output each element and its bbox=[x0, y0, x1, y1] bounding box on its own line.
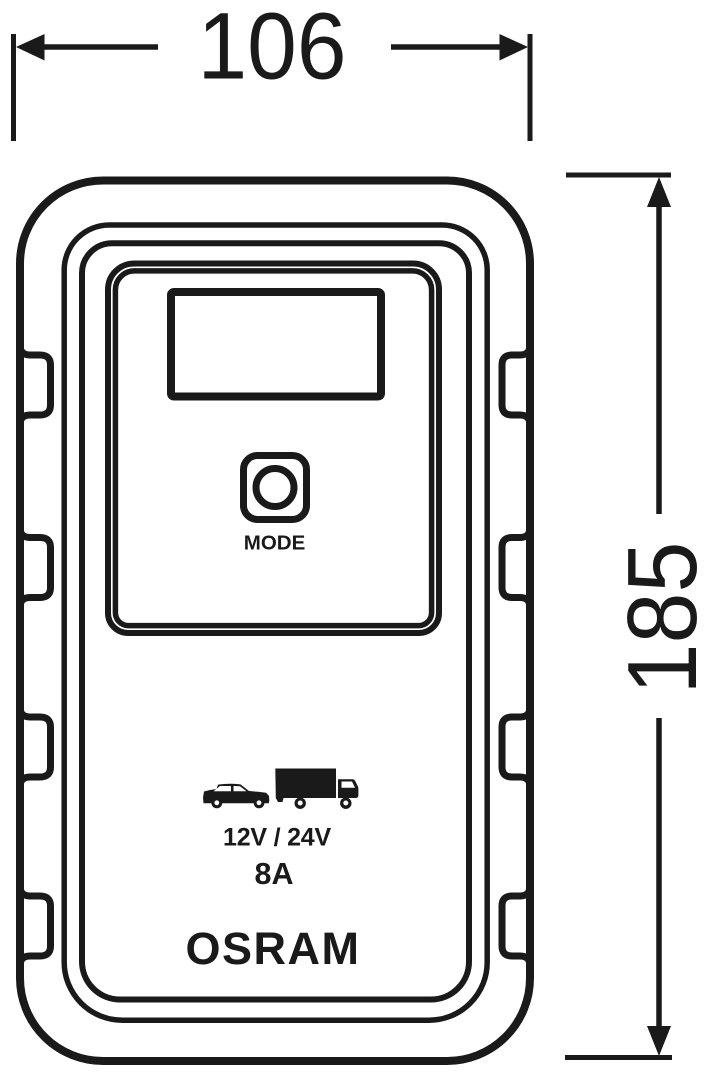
svg-text:12V / 24V: 12V / 24V bbox=[223, 824, 332, 852]
svg-text:8A: 8A bbox=[255, 857, 294, 891]
svg-text:OSRAM: OSRAM bbox=[186, 923, 361, 974]
svg-text:185: 185 bbox=[608, 541, 708, 694]
svg-text:106: 106 bbox=[198, 0, 347, 99]
svg-text:MODE: MODE bbox=[244, 532, 306, 555]
